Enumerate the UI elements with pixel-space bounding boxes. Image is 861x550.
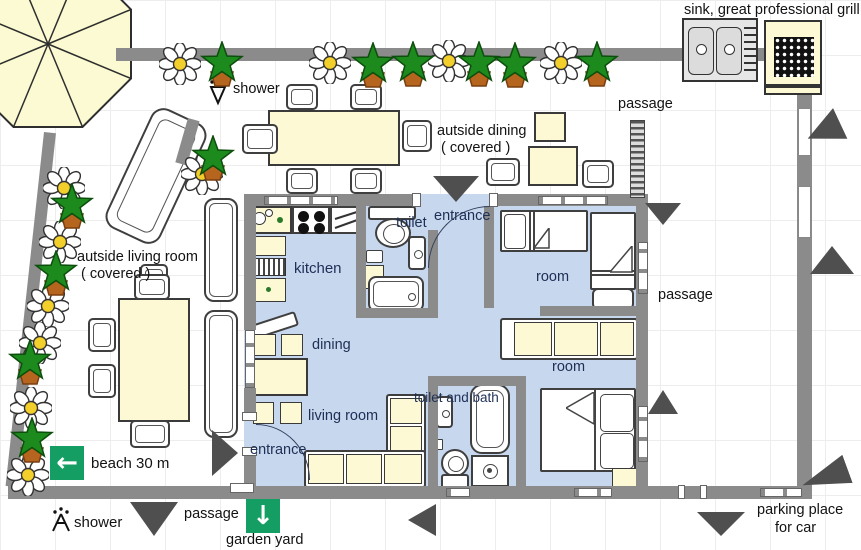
washing-machine — [471, 455, 509, 487]
umbrella-icon — [0, 0, 144, 140]
window — [638, 406, 648, 462]
floor-plan: sink, great professional grill shower pa… — [0, 0, 861, 550]
blanket-fold — [610, 246, 634, 274]
bed-pillow — [600, 394, 634, 432]
bed-single — [500, 210, 588, 252]
chair — [88, 364, 116, 398]
sink-drain-left — [696, 44, 707, 55]
garden-door-mark — [230, 483, 254, 493]
sofa-cushion — [554, 322, 598, 356]
dining-table — [250, 358, 308, 396]
garden-gate-jamb-1 — [678, 485, 685, 499]
arrow-triangle-down — [130, 502, 178, 536]
kitchen-label: kitchen — [294, 260, 342, 277]
bed-single — [590, 212, 636, 290]
passage-top-label: passage — [618, 96, 673, 113]
beach-sign: ← — [50, 446, 84, 480]
outdoor-sink — [682, 18, 758, 82]
gate-right-2 — [798, 186, 811, 238]
outside-dining-table — [268, 110, 400, 166]
sofa-cushion — [308, 454, 344, 484]
star-plant-icon — [9, 417, 55, 468]
plant-dot — [277, 217, 283, 223]
star-plant-icon — [33, 250, 79, 301]
star-plant-icon — [574, 41, 620, 92]
arrow-triangle-left — [408, 504, 436, 536]
nightstand — [612, 468, 638, 488]
sink-drain-right — [724, 44, 735, 55]
small-cabinet — [366, 250, 383, 263]
chair — [242, 124, 278, 154]
shower-icon — [48, 506, 74, 539]
blanket-fold — [566, 392, 596, 426]
house-wall-left-a — [244, 194, 256, 330]
sink-drainboard — [744, 27, 756, 73]
dining-chair — [253, 334, 276, 356]
passage-gate — [630, 120, 645, 198]
arrow-triangle-up — [648, 390, 678, 414]
faucet-knob — [265, 209, 273, 217]
kitchen-cabinet — [252, 278, 286, 302]
star-plant-icon — [199, 41, 245, 92]
garden-yard-sign: ↓ — [246, 499, 280, 533]
star-plant-icon — [190, 135, 236, 186]
bed-double — [540, 388, 636, 472]
garden-yard-label: garden yard — [226, 532, 303, 549]
sofa-cushion — [390, 426, 422, 452]
entrance-top-label: entrance — [434, 208, 490, 225]
star-plant-icon — [49, 183, 95, 234]
door-jamb — [489, 193, 498, 207]
toilet-label: toilet — [396, 215, 427, 232]
flower-icon — [159, 43, 201, 90]
arrow-triangle-up — [810, 246, 854, 274]
passage-bottom-label: passage — [184, 506, 239, 523]
entrance-left-label: entrance — [250, 442, 306, 459]
arrow-triangle-down — [697, 512, 745, 536]
down-arrow-icon: ↓ — [252, 501, 274, 531]
chair — [582, 160, 614, 188]
window — [538, 196, 608, 205]
knob-dot — [266, 287, 271, 292]
bed-pillow — [600, 433, 634, 469]
chair — [350, 168, 382, 194]
left-arrow-icon: ← — [56, 448, 78, 478]
sofa-cushion — [384, 454, 422, 484]
door-jamb — [242, 412, 257, 421]
outside-dining-table-2 — [528, 146, 578, 186]
sofa-cushion — [346, 454, 382, 484]
outside-living-label-2: ( covered ) — [81, 266, 150, 283]
flower-icon — [309, 42, 351, 89]
toilet-bowl — [441, 449, 469, 477]
chair — [130, 420, 170, 448]
shower-bottom-label: shower — [74, 514, 122, 531]
chair — [88, 318, 116, 352]
gate-right-1 — [798, 108, 811, 156]
chair — [534, 112, 566, 142]
dish-rack — [252, 258, 286, 276]
star-plant-icon — [7, 339, 53, 390]
grill — [764, 20, 822, 86]
window — [574, 488, 612, 497]
passage-right-label: passage — [658, 287, 713, 304]
arrow-triangle-down — [645, 203, 681, 225]
outside-living-table — [118, 298, 190, 422]
sofa-cushion — [600, 322, 634, 356]
star-plant-icon — [492, 42, 538, 93]
wall-toilet-bottom — [356, 308, 438, 318]
room-bottom-label: room — [552, 359, 585, 376]
sink-grill-label: sink, great professional grill — [684, 2, 860, 19]
toilet-bath-label: toilet and bath — [414, 390, 499, 406]
grill-grate — [774, 37, 814, 77]
dining-chair — [281, 334, 303, 356]
parking-label: parking place — [757, 502, 843, 519]
chair — [286, 168, 318, 194]
wall-bath-top — [438, 376, 526, 386]
wall-toilet-left — [356, 206, 366, 318]
window — [638, 242, 648, 294]
beach-label: beach 30 m — [91, 455, 169, 472]
garden-wall-window — [760, 488, 802, 497]
outdoor-sofa — [204, 198, 238, 302]
star-plant-icon — [390, 41, 436, 92]
living-room-label: living room — [308, 408, 378, 425]
outside-dining-label: autside dining — [437, 123, 527, 140]
parking-label-2: for car — [775, 520, 816, 537]
sofa-cushion — [514, 322, 552, 356]
outside-dining-label-2: ( covered ) — [441, 140, 510, 157]
wall-rooms-divider — [540, 306, 648, 316]
bed-pillow — [504, 214, 526, 249]
window — [245, 330, 255, 388]
wall-sink — [408, 236, 426, 270]
window — [446, 488, 470, 497]
outside-living-label: autside living room — [77, 249, 198, 266]
shower-tray — [368, 276, 424, 312]
outdoor-sofa — [204, 310, 238, 438]
blanket-fold — [534, 228, 552, 250]
garden-gate-jamb-2 — [700, 485, 707, 499]
window — [264, 196, 338, 205]
grill-tray — [764, 86, 822, 95]
room-top-label: room — [536, 269, 569, 286]
stove — [292, 206, 330, 234]
dining-label: dining — [312, 337, 351, 354]
dining-chair — [280, 402, 302, 424]
chair — [402, 120, 432, 152]
chair — [486, 158, 520, 186]
door-jamb — [412, 193, 421, 207]
wall-bath-right — [516, 376, 526, 488]
